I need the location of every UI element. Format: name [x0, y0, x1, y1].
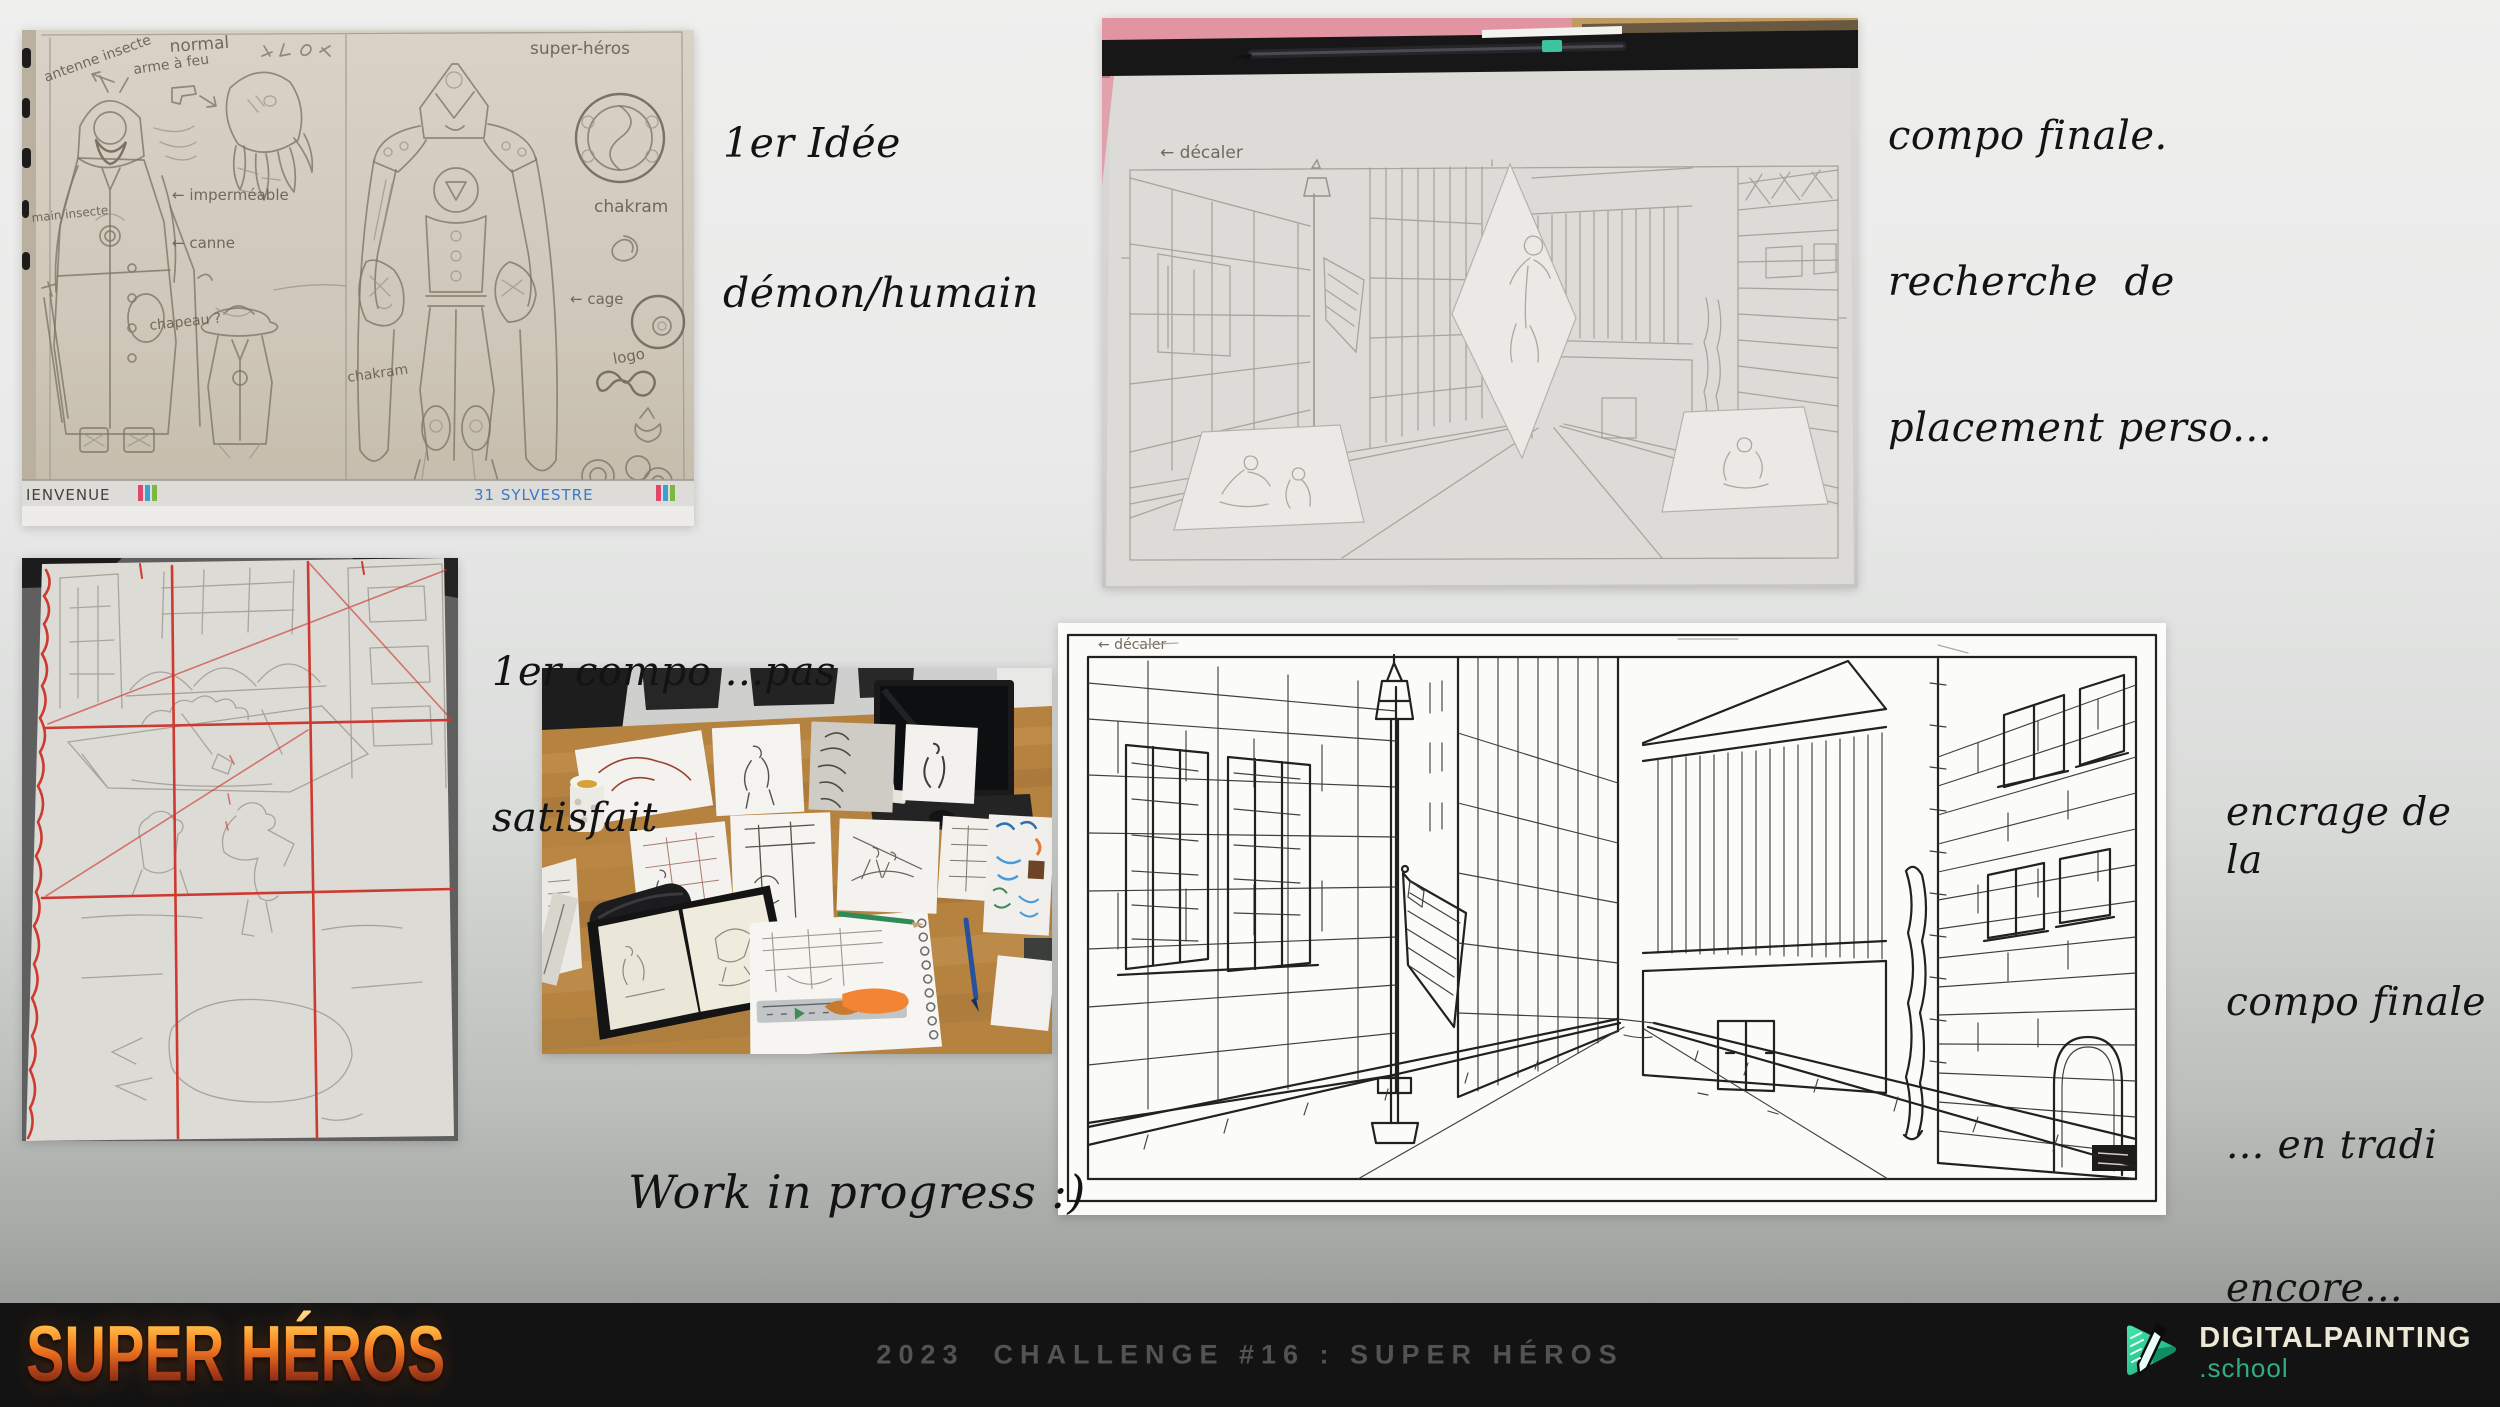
- sketch-label-decaler: ← décaler: [1160, 143, 1243, 163]
- caption-line: encrage de la: [2226, 789, 2500, 884]
- ruler-text-sylvestre: 31 SYLVESTRE: [474, 486, 594, 504]
- sketch-label-canne: ← canne: [172, 234, 235, 252]
- caption-line: Work in progress :): [628, 1164, 1086, 1220]
- caption-line: ... en tradi: [2226, 1122, 2500, 1170]
- digitalpainting-brand: DIGITALPAINTING .school: [2121, 1316, 2472, 1389]
- photo-character-sketches: normal super-héros: [22, 30, 694, 526]
- caption-line: 1er compo ...pas: [492, 648, 836, 697]
- caption-line: satisfait: [492, 794, 836, 843]
- caption-line: compo finale: [2226, 979, 2500, 1027]
- caption-line: démon/humain: [723, 268, 1039, 318]
- blank-paper: [990, 955, 1052, 1031]
- caption-line: recherche de: [1888, 258, 2272, 307]
- caption-line: placement perso...: [1888, 404, 2272, 453]
- sketch-label-impermeable: ← imperméable: [172, 186, 289, 204]
- super-heros-logo: SUPER HÉROS: [26, 1309, 445, 1399]
- brand-tld: .school: [2199, 1354, 2472, 1383]
- caption-line: compo finale.: [1888, 112, 2272, 161]
- sketch-label-decaler-faint: ← décaler: [1098, 637, 1166, 653]
- photo-compo-grid: [22, 558, 458, 1141]
- sketch-label-cage: ← cage: [570, 290, 624, 308]
- caption-first-idea: 1er Idée démon/humain: [723, 18, 1039, 418]
- photo-compo-recherche: ← décaler: [1102, 18, 1858, 588]
- caption-work-in-progress: Work in progress :): [628, 1052, 1086, 1333]
- caption-line: 1er Idée: [723, 118, 1039, 168]
- digitalpainting-icon: [2121, 1316, 2183, 1389]
- slide: normal super-héros: [0, 0, 2500, 1407]
- ruler-text-bienvenue: IENVENUE: [26, 486, 111, 504]
- footer-challenge-title: 2023 CHALLENGE #16 : SUPER HÉROS: [876, 1340, 1623, 1371]
- sketch-label-super-heros: super-héros: [530, 39, 630, 59]
- sketch-label-chakram-title: chakram: [594, 197, 668, 217]
- brand-name: DIGITALPAINTING: [2199, 1322, 2472, 1354]
- color-studies-sheet: [983, 814, 1052, 935]
- photo-encrage-final: ← décaler: [1058, 623, 2166, 1215]
- caption-premier-compo: 1er compo ...pas satisfait: [492, 550, 836, 940]
- caption-compo-recherche: compo finale. recherche de placement per…: [1888, 14, 2272, 551]
- ruler-strip: IENVENUE 31 SYLVESTRE: [22, 480, 694, 526]
- caption-encrage: encrage de la compo finale ... en tradi …: [2226, 694, 2500, 1407]
- paper-sheet: [26, 558, 454, 1141]
- footer-bar: SUPER HÉROS 2023 CHALLENGE #16 : SUPER H…: [0, 1303, 2500, 1407]
